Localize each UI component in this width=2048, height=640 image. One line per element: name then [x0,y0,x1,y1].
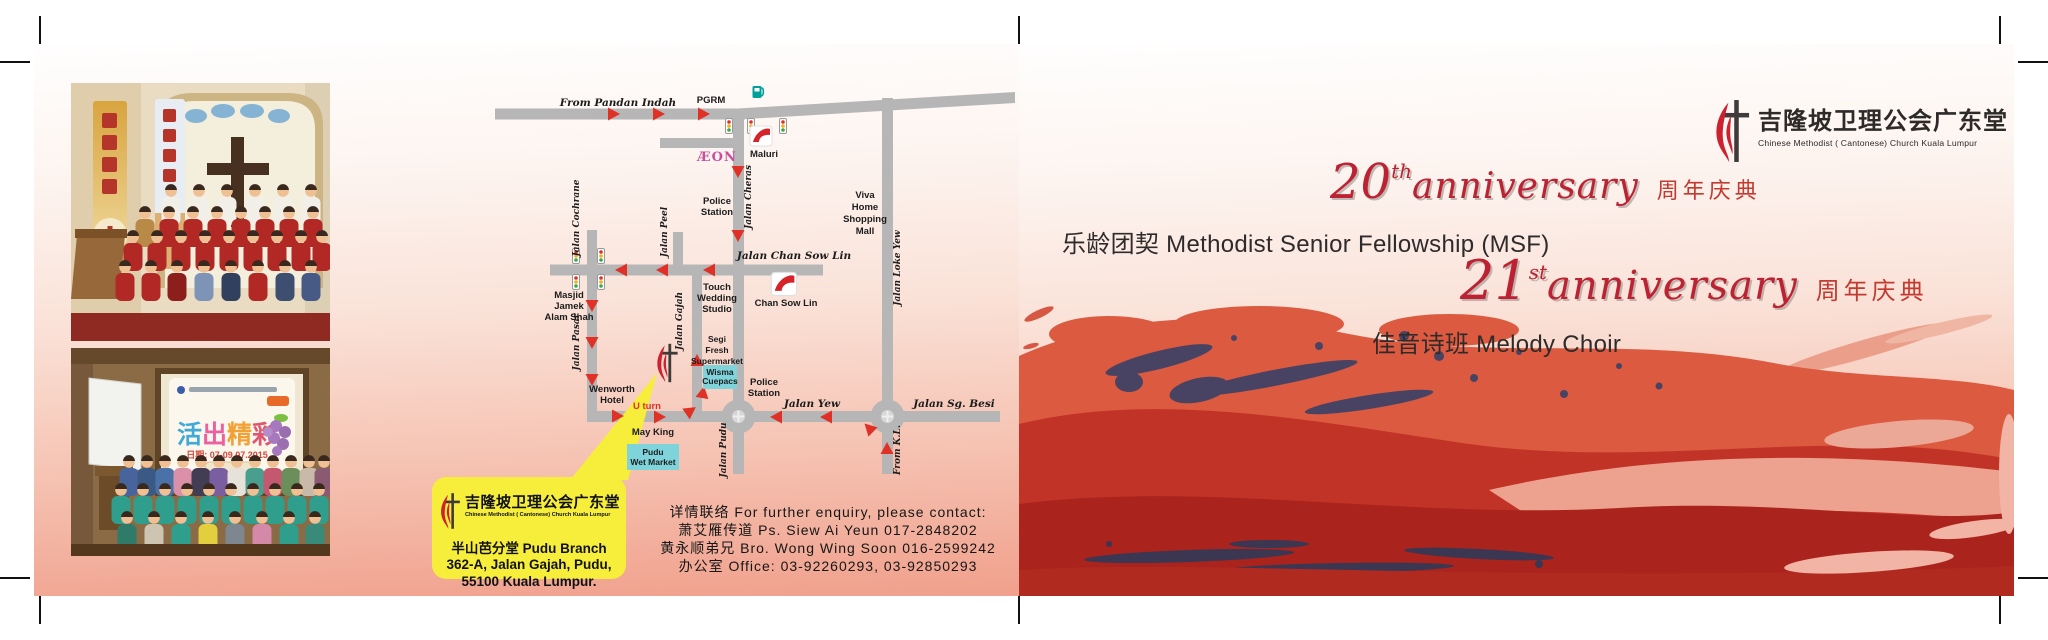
label-maluri: Maluri [750,149,778,160]
label-jalan-chan-sow-lin: Jalan Chan Sow Lin [735,250,851,262]
label-viva-home: Home [852,202,878,213]
label-u-turn: U turn [633,401,661,412]
photo-fellowship-group: 活出精彩 日期: 07-09.07.2015 [71,348,330,556]
projection-screen [89,378,141,470]
label-jalan-cheras: Jalan Cheras [744,165,754,231]
brand-name-en: Chinese Methodist ( Cantonese) Church Ku… [1758,138,2008,148]
label-may-king: May King [632,427,674,438]
crop-mark [2018,577,2048,579]
crop-mark [39,16,41,44]
label-jalan-loke-yew: Jalan Loke Yew [893,230,903,308]
contact-pastor: 萧艾雁传道 Ps. Siew Ai Yeun 017-2848202 [660,521,996,539]
anniversary-21-row: 21stanniversary 周年庆典 [1460,249,1928,312]
brand-name-zh: 吉隆坡卫理公会广东堂 [1758,101,2008,136]
label-jalan-yew: Jalan Yew [782,398,841,410]
church-logo-icon [438,483,461,539]
contact-brother: 黄永顺弟兄 Bro. Wong Wing Soon 016-2599242 [660,539,996,557]
label-wenworth-hotel: Hotel [600,395,624,406]
crop-mark-fold [1018,16,1020,44]
callout-branch: 半山芭分堂 Pudu Branch [438,541,620,557]
label-police-station-2: Police [750,377,778,388]
label-jalan-peel: Jalan Peel [660,206,670,259]
address-callout: 吉隆坡卫理公会广东堂 Chinese Methodist ( Cantonese… [432,477,626,579]
label-wisma-cuepacs: Cuepacs [702,376,738,386]
crop-mark [2018,61,2048,63]
label-from-kl: From K.L. [893,425,903,476]
photo-church-choir [71,83,330,341]
crop-mark [0,61,30,63]
callout-city: 55100 Kuala Lumpur. [438,574,620,590]
label-jalan-pudu: Jalan Pudu [719,422,729,480]
label-police-station-2: Station [748,388,780,399]
label-police-station-1: Station [701,207,733,218]
anniversary-21-script: 21stanniversary [1460,249,1798,312]
crop-mark [1999,16,2001,44]
label-pudu-wet-market: Pudu [642,447,663,457]
crop-mark [39,596,41,624]
label-aeon: ÆON [696,150,737,165]
label-from-pandan-indah: From Pandan Indah [559,97,676,109]
label-jalan-sg-besi: Jalan Sg. Besi [911,398,995,410]
banner-title: 活出精彩 [177,421,277,449]
contact-heading: 详情联络 For further enquiry, please contact… [660,503,996,521]
crop-mark [0,577,30,579]
callout-church-name-en: Chinese Methodist ( Cantonese) Church Ku… [465,512,620,518]
label-jalan-cochrane: Jalan Cochrane [572,179,582,258]
label-masjid: Jamek [554,301,584,312]
contact-office: 办公室 Office: 03-92260293, 03-92850293 [660,557,996,575]
callout-street: 362-A, Jalan Gajah, Pudu, [438,557,620,573]
label-touch-wedding: Studio [702,304,732,315]
brochure-sheet: 活出精彩 日期: 07-09.07.2015 [0,0,2048,640]
crop-mark-fold [1018,596,1020,624]
maluri-station-icon [750,126,772,146]
label-segi-fresh: Supermarket [691,356,743,366]
callout-church-name-zh: 吉隆坡卫理公会广东堂 [465,491,620,512]
label-police-station-1: Police [703,196,731,207]
red-carpet [71,313,330,341]
label-jalan-pasar: Jalan Pasar [572,312,582,372]
anniversary-20-script: 20thanniversary [1330,154,1639,210]
chan-sow-lin-station-icon [771,273,796,296]
anniversary-20-zh: 周年庆典 [1657,173,1761,205]
crop-mark [1999,596,2001,624]
label-viva-home: Shopping [843,214,887,225]
label-segi-fresh: Segi [708,334,726,344]
label-touch-wedding: Touch [703,282,731,293]
anniversary-21-zh: 周年庆典 [1816,271,1928,306]
label-pgrm: PGRM [697,95,726,106]
contact-block: 详情联络 For further enquiry, please contact… [660,503,996,575]
front-cover-panel: 吉隆坡卫理公会广东堂 Chinese Methodist ( Cantonese… [1019,44,2014,596]
melody-choir-line: 佳音诗班 Melody Choir [1372,324,1621,359]
label-masjid: Alam Shah [544,312,593,323]
petrol-station-icon [753,86,764,98]
label-touch-wedding: Wedding [697,293,737,304]
label-segi-fresh: Fresh [705,345,728,355]
label-chan-sow-lin: Chan Sow Lin [755,298,818,309]
label-masjid: Masjid [554,290,584,301]
anniversary-20-row: 20thanniversary 周年庆典 [1330,154,1761,210]
back-cover-panel: 活出精彩 日期: 07-09.07.2015 [34,44,1019,596]
location-map: From Pandan Indah PGRM ÆON Maluri Jalan … [420,60,1015,480]
label-pudu-wet-market: Wet Market [630,457,675,467]
label-jalan-gajah: Jalan Gajah [675,292,685,352]
label-wenworth-hotel: Wenworth [589,384,635,395]
label-viva-home: Viva [855,190,875,201]
label-viva-home: Mall [856,226,874,237]
